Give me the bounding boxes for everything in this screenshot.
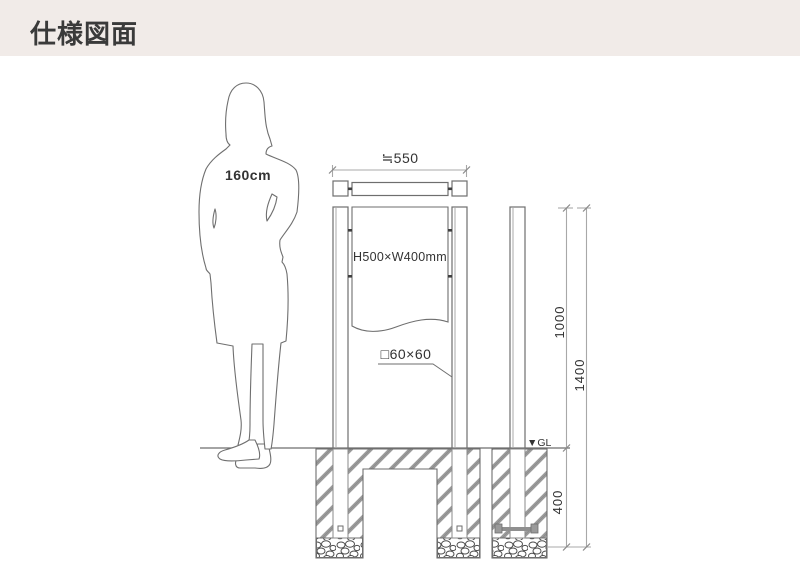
dim-top-width-label: ≒550 xyxy=(381,150,418,166)
spec-sheet-page: 仕様図面 xyxy=(0,0,800,580)
leader-line xyxy=(378,364,452,377)
spec-drawing: 160cm ≒550 H500×W400mm xyxy=(0,0,800,580)
body-outline xyxy=(199,83,299,449)
dim-total-height-label: 1400 xyxy=(572,359,587,392)
dim-above-ground-label: 1000 xyxy=(552,306,567,339)
person-silhouette xyxy=(199,83,299,468)
front-view xyxy=(333,181,467,448)
dim-below-ground-label: 400 xyxy=(550,490,565,515)
gl-marker-label: ▼GL xyxy=(527,437,552,449)
side-view xyxy=(510,207,525,448)
person-height-label: 160cm xyxy=(225,167,271,183)
post-section-label: □60×60 xyxy=(381,346,432,362)
panel-size-label: H500×W400mm xyxy=(353,250,447,264)
sign-panel xyxy=(352,207,448,331)
